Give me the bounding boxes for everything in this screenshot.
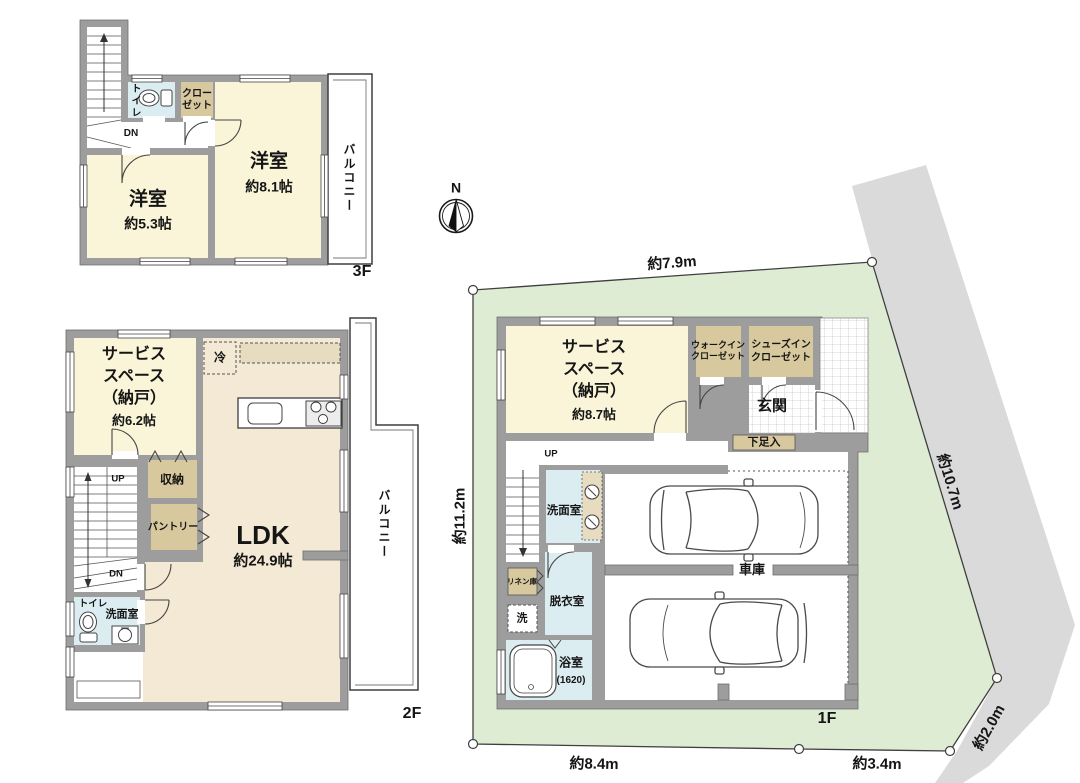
linen-closet (508, 568, 537, 595)
service-space-2f (74, 338, 196, 455)
bathtub-icon (510, 645, 556, 697)
balcony-2f (350, 318, 418, 690)
vanity-1f (582, 472, 602, 540)
room-81 (215, 82, 321, 258)
toilet-icon-2f (80, 612, 98, 642)
balcony-3f (328, 74, 372, 264)
compass-icon (440, 199, 473, 233)
garage-divider-wall-left (605, 565, 733, 575)
sink-icon-2f (112, 626, 138, 644)
porch-tile (820, 318, 868, 433)
floorplan-drawing (0, 0, 1080, 783)
car-top (650, 479, 818, 561)
shoes-closet (749, 326, 813, 377)
storage-2f (148, 460, 197, 498)
car-bottom (630, 592, 807, 674)
pantry-2f (151, 504, 197, 550)
floor2-plan (66, 318, 418, 710)
wall-stub-ldk (303, 551, 348, 560)
floor-plan-page: トイレ クロー ゼット DN 洋室 約8.1帖 洋室 約5.3帖 バルコニー 3… (0, 0, 1080, 783)
closet-3f (181, 82, 213, 118)
shoe-box (733, 435, 795, 450)
toilet-icon-3f (139, 90, 172, 106)
kitchen-cabinet-2f (240, 343, 340, 363)
floor3-plan (80, 20, 372, 265)
entrance-tile (749, 385, 815, 433)
garage-divider-wall-right (773, 565, 858, 575)
walkin-closet (696, 326, 741, 377)
service-space-1f (506, 326, 688, 433)
kitchen-counter-2f (238, 398, 342, 428)
floor1-plan (497, 317, 868, 709)
laundry-space (508, 605, 537, 632)
room-53 (87, 155, 208, 258)
